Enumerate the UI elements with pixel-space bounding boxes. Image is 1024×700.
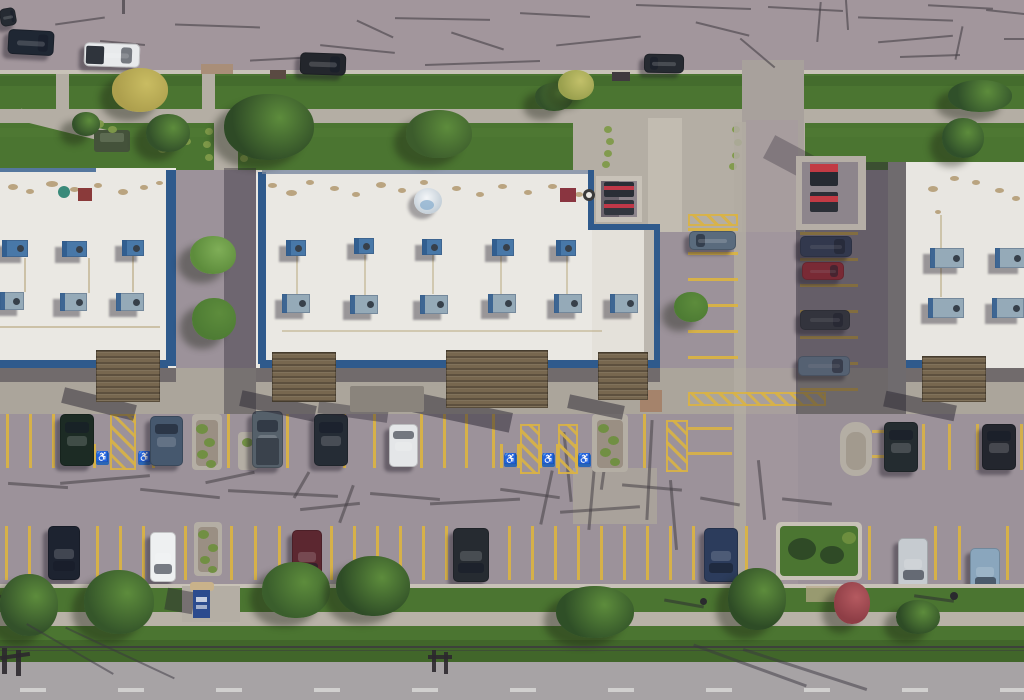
aerial-photo: Aerial drone view of a retail strip-mall… bbox=[0, 0, 1024, 700]
lane-dashes bbox=[412, 688, 438, 692]
pole-h-frame bbox=[428, 655, 452, 659]
lane-dashes bbox=[804, 688, 830, 692]
lane-dashes bbox=[706, 688, 732, 692]
lane-dashes bbox=[216, 688, 242, 692]
lane-dashes bbox=[902, 688, 928, 692]
power-and-road bbox=[0, 0, 1024, 700]
lane-dashes bbox=[510, 688, 536, 692]
pole-h-frame bbox=[432, 650, 436, 672]
lane-dashes bbox=[608, 688, 634, 692]
lane-dashes bbox=[314, 688, 340, 692]
lane-dashes bbox=[20, 688, 46, 692]
pole-h-frame bbox=[2, 648, 7, 674]
lane-dashes bbox=[1000, 688, 1024, 692]
lane-dashes bbox=[118, 688, 144, 692]
power-line bbox=[0, 650, 1024, 651]
wire-shadows bbox=[65, 627, 175, 680]
power-line bbox=[0, 646, 1024, 648]
